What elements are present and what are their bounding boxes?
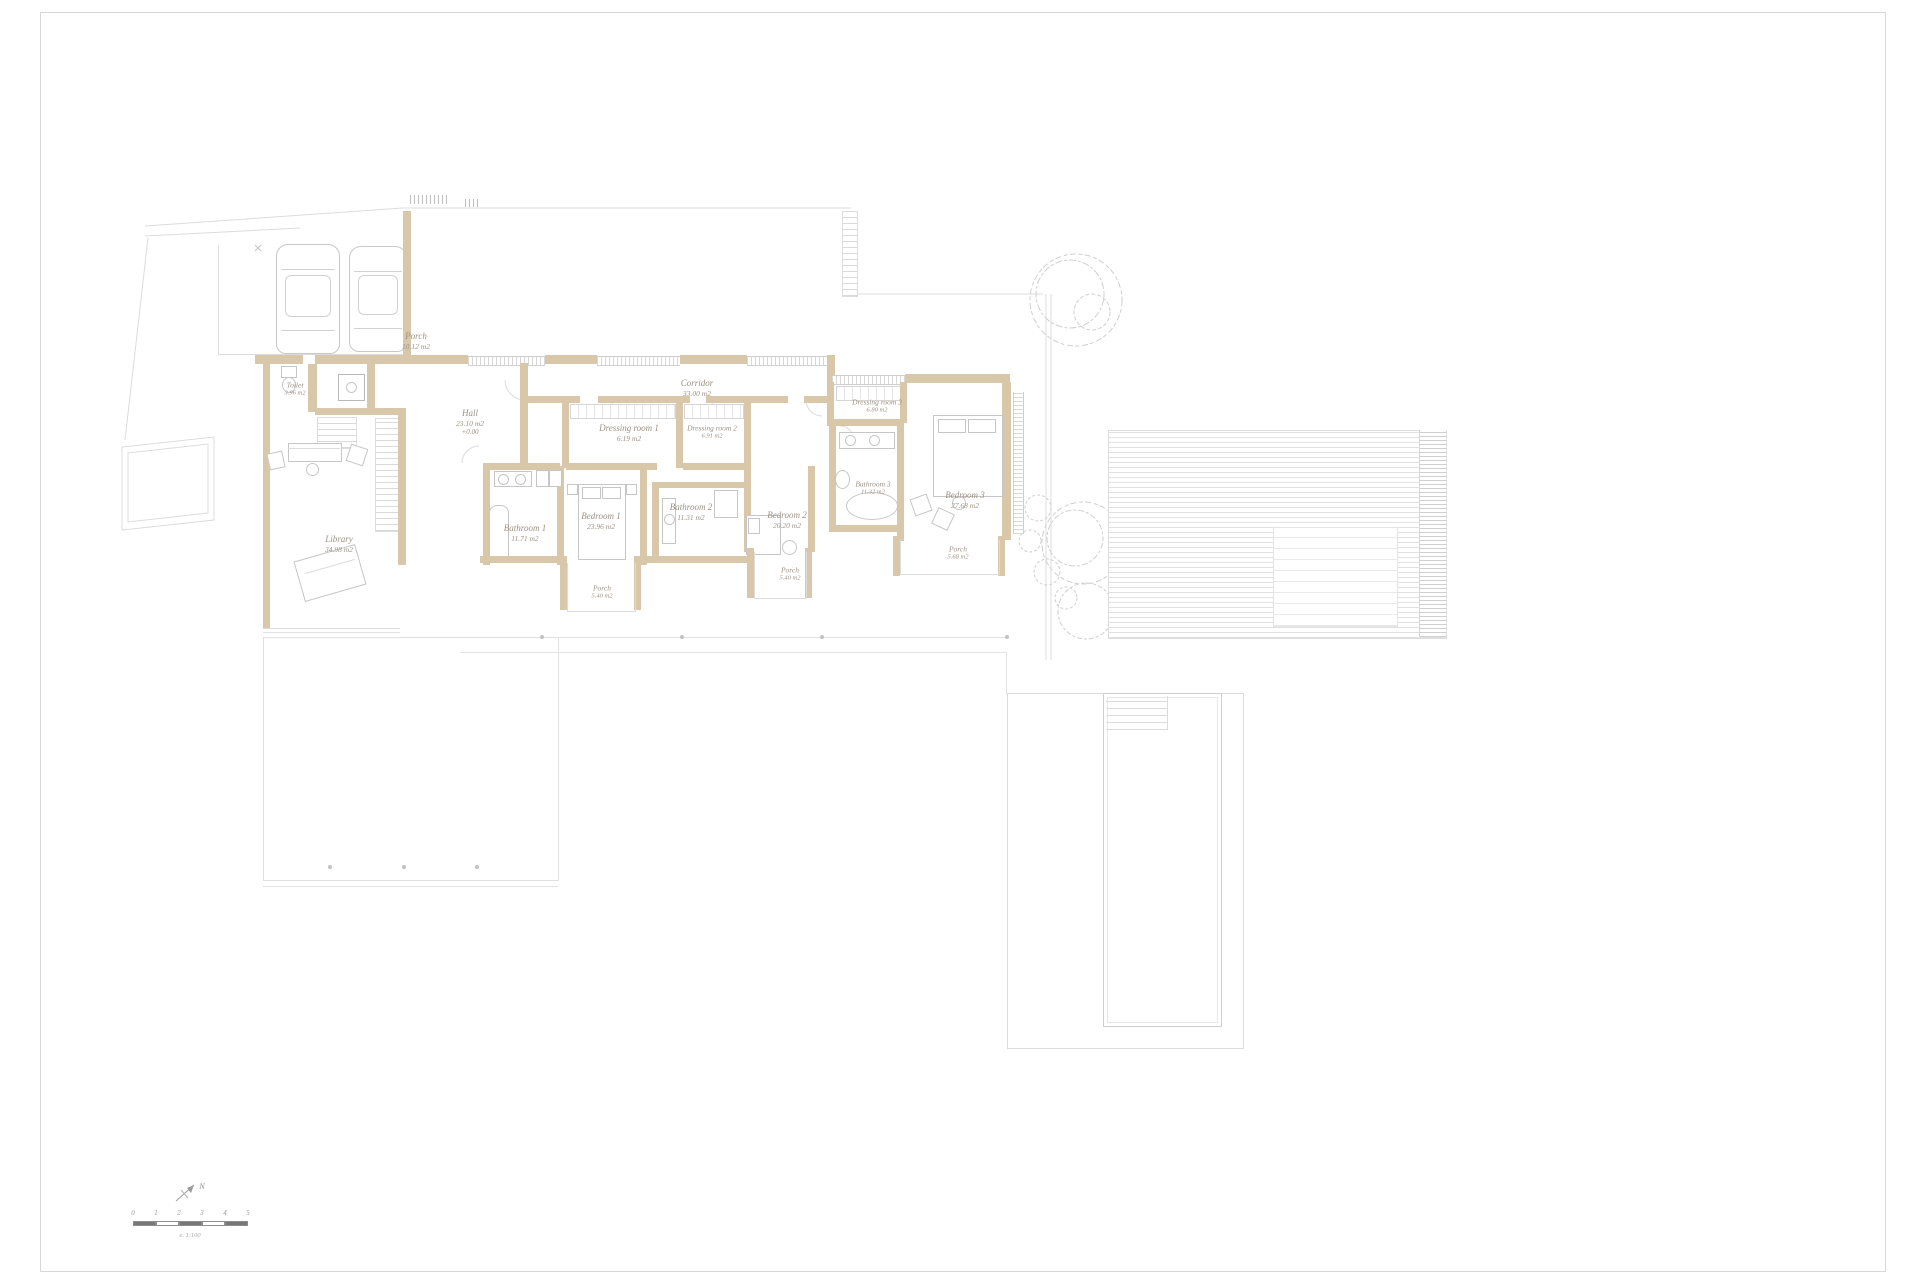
column-dot [402, 865, 406, 869]
tree-icon [1074, 294, 1110, 330]
scale-text: e. 1:100 [179, 1232, 200, 1239]
scale-tick: 5 [246, 1209, 250, 1217]
terrace-step-line [263, 886, 558, 887]
wall-segment [905, 374, 1010, 383]
room-area: 23.10 m2 [456, 419, 484, 428]
window-strip [832, 375, 905, 385]
nightstand-symbol [626, 484, 637, 495]
column-dot [680, 635, 684, 639]
room-label-bathroom3: Bathroom 3 11.32 m2 [855, 480, 890, 497]
library-south-glazing [263, 632, 400, 633]
wall-segment [830, 419, 904, 426]
car-rear-window [354, 328, 402, 329]
room-label-porch1: Porch 5.40 m2 [592, 584, 613, 601]
nightstand-symbol [567, 484, 578, 495]
wall-segment [483, 463, 560, 470]
column-dot [475, 865, 479, 869]
carport-edge [218, 245, 219, 355]
paving-line [557, 637, 1007, 638]
room-area: 11.32 m2 [855, 489, 890, 497]
column-dot [328, 865, 332, 869]
room-name: Bedroom 3 [945, 490, 984, 500]
wall-segment [652, 482, 659, 562]
pool-step [1106, 701, 1168, 702]
room-label-porch-garage: Porch 10.12 m2 [402, 331, 430, 351]
site-steps [842, 211, 858, 297]
room-name: Corridor [681, 378, 714, 388]
staircase [375, 418, 400, 532]
room-area: 3.96 m2 [285, 390, 306, 398]
tree-icon [1030, 254, 1122, 346]
tree-icon [1047, 510, 1103, 566]
pool-step [1106, 722, 1168, 723]
car-windshield [281, 269, 335, 270]
pool-waterline [1107, 697, 1218, 1023]
room-area: 5.40 m2 [592, 593, 613, 601]
pillow-symbol [602, 487, 621, 499]
room-area: 23.96 m2 [581, 522, 620, 531]
car-windshield [354, 271, 402, 272]
wall-segment [829, 525, 901, 532]
wall-segment [308, 364, 317, 412]
west-boundary-line [125, 238, 148, 440]
pool-step [1106, 715, 1168, 716]
room-name: Bathroom 2 [670, 502, 712, 512]
room-label-porch3: Porch 5.68 m2 [948, 545, 969, 562]
room-area: 20.20 m2 [767, 521, 806, 530]
room-name: Library [325, 534, 353, 544]
north-label: N [199, 1182, 204, 1191]
room-label-bathroom1: Bathroom 1 11.71 m2 [504, 523, 546, 543]
scale-tick: 1 [154, 1209, 158, 1217]
scale-tick: 3 [200, 1209, 204, 1217]
column-dot [820, 635, 824, 639]
room-label-bathroom2: Bathroom 2 11.31 m2 [670, 502, 712, 522]
shower-symbol [714, 490, 738, 518]
fence-ticks [465, 199, 479, 207]
wall-segment [315, 408, 406, 415]
room-label-dressing3: Dressing room 3 6.80 m2 [852, 398, 902, 415]
pillow-symbol [582, 487, 601, 499]
wall-segment [367, 355, 468, 364]
room-area: 11.31 m2 [670, 513, 712, 522]
room-name: Bathroom 3 [855, 480, 890, 489]
toilet-symbol [536, 470, 549, 487]
room-area: 6.19 m2 [599, 434, 659, 443]
wardrobe-symbol [570, 404, 676, 419]
room-area: 6.91 m2 [687, 433, 737, 441]
room-name: Porch [405, 331, 427, 341]
door-arc [462, 446, 479, 463]
wall-segment [545, 355, 597, 364]
room-area: 27.68 m2 [945, 501, 984, 510]
room-name: Porch [949, 545, 967, 554]
window-strip [747, 356, 830, 366]
sofa-symbol [288, 443, 342, 462]
floor-plan-sheet: Porch 10.12 m2 Toilet 3.96 m2 Hall 23.10… [0, 0, 1920, 1280]
bush-icon [1025, 495, 1051, 521]
wall-segment [652, 482, 744, 488]
wall-segment [640, 466, 647, 565]
room-name: Bedroom 2 [767, 510, 806, 520]
room-area: 11.71 m2 [504, 534, 546, 543]
terrace-outline [263, 637, 559, 881]
room-label-dressing1: Dressing room 1 6.19 m2 [599, 423, 659, 443]
car-roof [358, 275, 398, 315]
porch-pier [747, 548, 754, 598]
toilet-symbol [835, 470, 850, 489]
room-name: Bathroom 1 [504, 523, 546, 533]
scale-tick: 0 [131, 1209, 135, 1217]
scale-segment [225, 1221, 248, 1226]
wardrobe-symbol [684, 404, 744, 419]
porch-pier [893, 536, 900, 576]
bidet-symbol [549, 470, 562, 487]
library-west-wall [263, 363, 270, 628]
wall-segment [647, 556, 747, 563]
pool-step [1106, 729, 1168, 730]
room-level: +0.00 [456, 428, 484, 436]
west-annex-outline [122, 437, 214, 530]
room-label-bedroom3: Bedroom 3 27.68 m2 [945, 490, 984, 510]
pool-step [1106, 708, 1168, 709]
armchair-symbol [266, 451, 285, 471]
wall-segment [520, 363, 528, 463]
wall-segment [480, 556, 564, 563]
column-dot [540, 635, 544, 639]
paving-line [1006, 652, 1007, 694]
driveway-edge-line [145, 228, 300, 236]
scale-tick: 2 [177, 1209, 181, 1217]
room-name: Porch [781, 566, 799, 575]
room-name: Bedroom 1 [581, 511, 620, 521]
sink-bowl [515, 474, 526, 485]
wall-segment [676, 400, 683, 468]
room-area: 5.68 m2 [948, 554, 969, 562]
room-area: 6.80 m2 [852, 407, 902, 415]
room-name: Porch [593, 584, 611, 593]
fence-ticks [410, 195, 448, 204]
louver-strip [1013, 392, 1024, 534]
pillow-symbol [748, 518, 760, 534]
tree-icon [1058, 583, 1114, 639]
room-label-corridor: Corridor 33.00 m2 [681, 378, 714, 398]
room-label-dressing2: Dressing room 2 6.91 m2 [687, 424, 737, 441]
column-dot [1005, 635, 1009, 639]
library-south-glazing [263, 628, 400, 629]
shower-drain [346, 382, 357, 393]
room-name: Hall [462, 408, 478, 418]
bush-icon [1055, 587, 1077, 609]
coffee-table-symbol [306, 463, 319, 476]
room-label-bedroom1: Bedroom 1 23.96 m2 [581, 511, 620, 531]
room-label-toilet: Toilet 3.96 m2 [285, 381, 306, 398]
wall-segment [897, 419, 904, 541]
porch-pier [560, 556, 567, 610]
room-label-porch2: Porch 5.40 m2 [780, 566, 801, 583]
paving-line [460, 652, 1007, 653]
wall-segment [398, 415, 406, 565]
window-strip [597, 356, 680, 366]
wall-segment [808, 466, 815, 552]
room-area: 33.00 m2 [681, 389, 714, 398]
sofa-back-line [288, 448, 340, 449]
window-strip [468, 356, 545, 366]
room-area: 34.98 m2 [325, 545, 353, 554]
deck-seating-area [1273, 527, 1398, 627]
room-area: 10.12 m2 [402, 342, 430, 351]
car-roof [285, 275, 331, 317]
driveway-boundary-line [145, 208, 403, 226]
scale-segment [156, 1221, 179, 1226]
north-arrow [176, 1185, 194, 1201]
room-name: Toilet [287, 381, 304, 390]
sink-bowl [498, 474, 509, 485]
wall-segment [315, 355, 367, 364]
pool [1103, 693, 1222, 1027]
car-symbol [276, 244, 340, 354]
room-label-library: Library 34.98 m2 [325, 534, 353, 554]
room-label-hall: Hall 23.10 m2 +0.00 [456, 408, 484, 436]
room-name: Dressing room 1 [599, 423, 659, 433]
west-annex-inner [128, 444, 208, 522]
scale-tick: 4 [223, 1209, 227, 1217]
wall-segment [1002, 382, 1011, 540]
corridor-south-wall [527, 396, 580, 403]
pillow-symbol [938, 419, 966, 433]
room-name: Dressing room 2 [687, 424, 737, 433]
room-name: Dressing room 3 [852, 398, 902, 407]
sink-bowl [845, 435, 856, 446]
wall-segment [562, 400, 569, 468]
scale-segment [202, 1221, 225, 1226]
car-rear-window [281, 330, 335, 331]
car-symbol [349, 246, 407, 352]
pillow-symbol [968, 419, 996, 433]
sink-bowl [869, 435, 880, 446]
room-area: 5.40 m2 [780, 575, 801, 583]
deck-stairs [1419, 430, 1446, 637]
wall-segment [683, 463, 744, 470]
wall-segment [680, 355, 747, 364]
wall-segment [367, 364, 375, 412]
pool-step-edge [1167, 696, 1168, 730]
scale-segment [179, 1221, 202, 1226]
scale-segment [133, 1221, 156, 1226]
room-label-bedroom2: Bedroom 2 20.20 m2 [767, 510, 806, 530]
